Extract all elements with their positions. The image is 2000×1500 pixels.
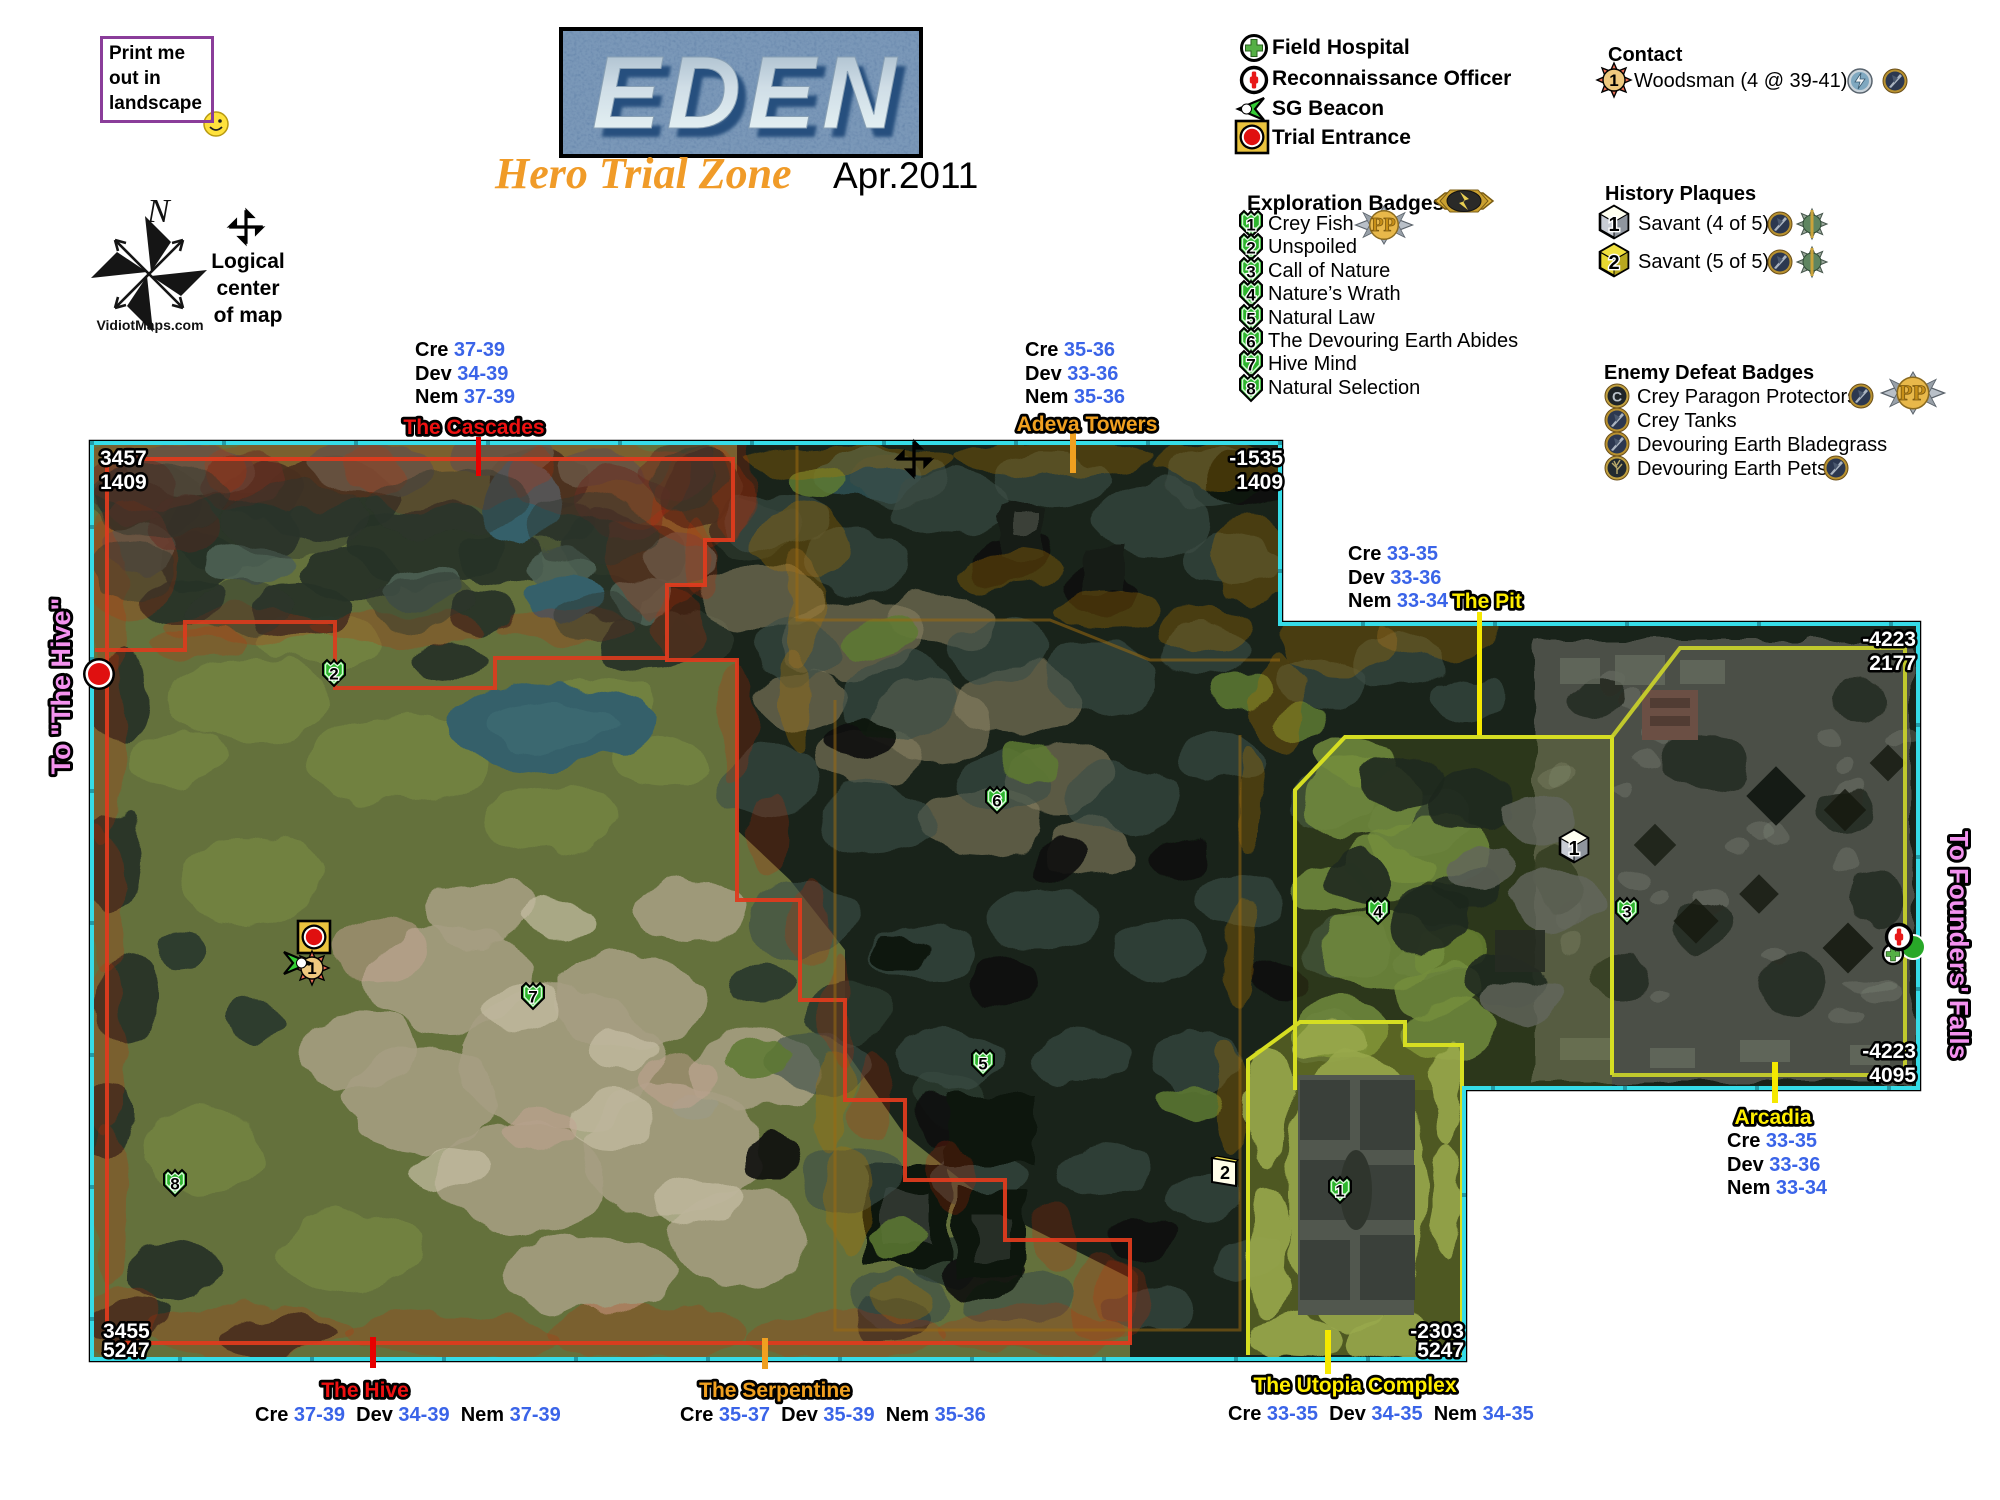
svg-text:8: 8 (1246, 380, 1255, 399)
svg-text:4: 4 (1246, 286, 1256, 305)
svg-text:6: 6 (1246, 333, 1255, 352)
svg-text:7: 7 (1246, 356, 1255, 375)
svg-text:PP: PP (1899, 380, 1926, 405)
svg-text:2: 2 (1608, 252, 1619, 274)
svg-text:2: 2 (1246, 239, 1255, 258)
svg-text:C: C (1612, 389, 1622, 405)
svg-text:1: 1 (1608, 214, 1619, 236)
svg-text:PP: PP (1371, 214, 1395, 236)
svg-text:1: 1 (1609, 71, 1618, 90)
svg-text:3: 3 (1246, 263, 1255, 282)
svg-text:5: 5 (1246, 310, 1255, 329)
svg-text:1: 1 (1246, 216, 1255, 235)
